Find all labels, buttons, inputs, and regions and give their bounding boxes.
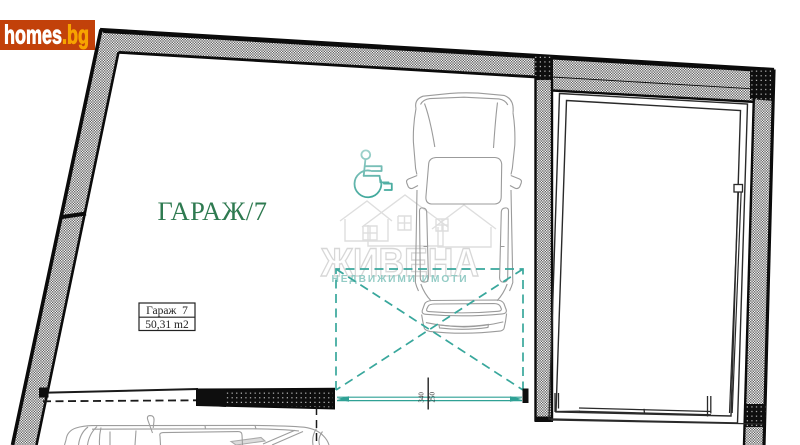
- svg-text:Гараж 7: Гараж 7: [146, 305, 188, 317]
- svg-text:340: 340: [418, 392, 426, 403]
- svg-text:50,31 m2: 50,31 m2: [145, 319, 189, 331]
- svg-text:250: 250: [428, 392, 436, 403]
- svg-text:ГАРАЖ/7: ГАРАЖ/7: [158, 196, 268, 226]
- svg-text:homes.bg: homes.bg: [4, 20, 89, 50]
